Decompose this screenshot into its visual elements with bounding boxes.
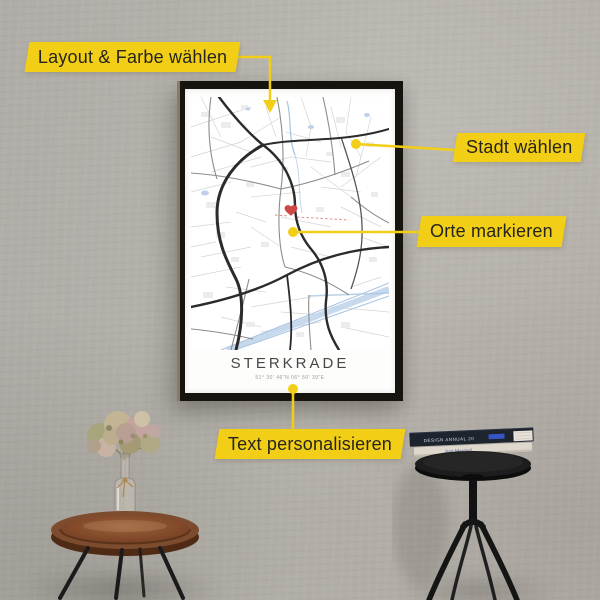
callout-layout-farbe[interactable]: Layout & Farbe wählen [25,42,241,72]
poster-paper: STERKRADE 51° 30' 46"N 06° 50' 39"E [185,89,395,393]
city-map [191,97,389,350]
map-route [275,215,349,220]
callout-text-personalisieren-label: Text personalisieren [228,434,392,455]
callout-stadt[interactable]: Stadt wählen [453,133,586,162]
poster-coordinates: 51° 30' 46"N 06° 50' 39"E [185,375,395,381]
callout-text-personalisieren[interactable]: Text personalisieren [215,429,406,459]
wall-shadow [392,465,448,585]
callout-orte-label: Orte markieren [430,221,553,242]
table-legs [60,548,183,598]
side-table [40,398,210,600]
bouquet [87,411,161,460]
room-scene: Just Married DESIGN ANNUAL 20 [0,0,600,600]
callout-layout-farbe-label: Layout & Farbe wählen [38,47,227,68]
tabletop [51,511,199,556]
poster-title: STERKRADE [185,355,395,372]
map-poster-frame: STERKRADE 51° 30' 46"N 06° 50' 39"E [177,81,403,401]
stool: Just Married DESIGN ANNUAL 20 [392,420,562,600]
callout-orte[interactable]: Orte markieren [417,216,567,247]
callout-stadt-label: Stadt wählen [466,137,572,158]
vase [115,454,135,516]
map-water [201,101,389,350]
